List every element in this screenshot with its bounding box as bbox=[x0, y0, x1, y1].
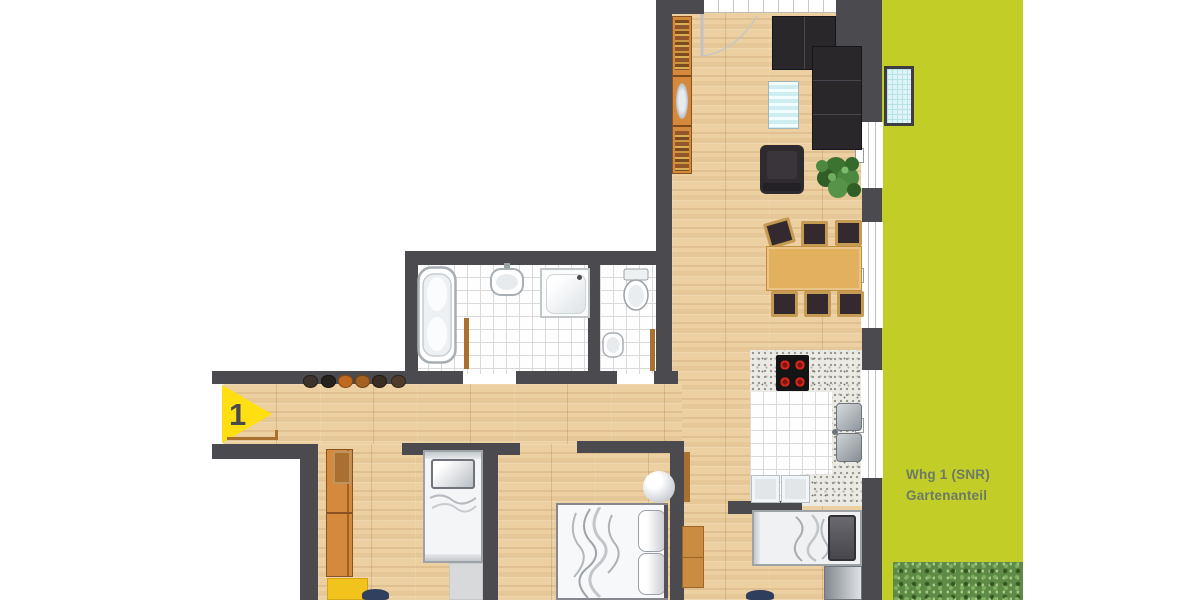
sink-basin bbox=[836, 433, 862, 462]
dining-chair bbox=[801, 221, 828, 247]
garden-label-line1: Whg 1 (SNR) bbox=[906, 464, 990, 485]
wall-segment bbox=[577, 441, 678, 453]
wall-segment bbox=[656, 0, 672, 384]
single-bed bbox=[423, 450, 483, 563]
shoes bbox=[372, 375, 387, 388]
shower-tray bbox=[546, 274, 586, 314]
books bbox=[675, 20, 689, 70]
entrance-number: 1 bbox=[229, 397, 246, 433]
kitchen-appliance bbox=[751, 475, 780, 503]
sink-faucet bbox=[832, 429, 838, 435]
bed-headboard bbox=[664, 505, 668, 598]
floor-corridor bbox=[223, 384, 682, 445]
dining-chair bbox=[771, 291, 798, 317]
window-kitchen bbox=[861, 370, 883, 478]
closet bbox=[824, 566, 862, 600]
wall-segment bbox=[516, 371, 617, 384]
dining-chair bbox=[835, 220, 862, 246]
sink-basin bbox=[836, 403, 862, 431]
shoes bbox=[338, 375, 353, 388]
entrance-door bbox=[227, 437, 278, 440]
dining-chair bbox=[837, 291, 864, 317]
single-bed-horizontal bbox=[752, 510, 862, 566]
bed-headboard bbox=[425, 452, 481, 459]
shelf-bowl bbox=[676, 83, 688, 119]
plant bbox=[808, 146, 864, 202]
bed-sheet-folds bbox=[426, 490, 480, 518]
shoes bbox=[391, 375, 406, 388]
bed-pillow bbox=[638, 510, 666, 552]
armchair-front bbox=[763, 183, 801, 191]
toilet bbox=[620, 268, 652, 312]
shoes bbox=[321, 375, 336, 388]
cooktop bbox=[776, 355, 809, 391]
coffee-table bbox=[768, 81, 799, 129]
wall-segment bbox=[300, 456, 318, 600]
garden-label-line2: Gartenanteil bbox=[906, 485, 990, 506]
floor-plan: Whg 1 (SNR) Gartenanteil 1 bbox=[0, 0, 1200, 600]
bed-pillow bbox=[828, 515, 856, 561]
wall-segment bbox=[405, 251, 672, 265]
shelf-divider bbox=[673, 125, 691, 127]
window-dining bbox=[861, 222, 883, 328]
office-chair bbox=[362, 589, 389, 600]
entry-door-swing bbox=[697, 12, 761, 60]
office-chair bbox=[746, 590, 774, 600]
double-bed bbox=[556, 503, 668, 600]
window-living bbox=[861, 122, 883, 188]
light-well bbox=[884, 66, 914, 126]
bed-footboard bbox=[754, 512, 760, 564]
entrance-door-handle bbox=[275, 430, 278, 438]
books bbox=[675, 131, 689, 171]
wall-segment bbox=[482, 443, 498, 600]
shelf-divider bbox=[673, 75, 691, 77]
wall-segment bbox=[405, 371, 463, 384]
washbasin bbox=[489, 263, 525, 297]
garden-label: Whg 1 (SNR) Gartenanteil bbox=[906, 464, 990, 506]
hedge bbox=[893, 562, 1023, 600]
shower-drain bbox=[577, 275, 582, 280]
wc-door bbox=[650, 329, 655, 371]
shower bbox=[540, 268, 590, 318]
bed-pillow bbox=[431, 459, 475, 489]
shoes bbox=[303, 375, 318, 388]
corner-sofa bbox=[812, 46, 862, 150]
bed-footboard bbox=[425, 554, 481, 561]
bedroom-door bbox=[684, 452, 690, 502]
dining-table bbox=[766, 246, 862, 291]
rug bbox=[449, 563, 483, 600]
armchair-seat bbox=[767, 151, 797, 179]
armchair bbox=[760, 145, 804, 194]
bed-pillow bbox=[638, 553, 666, 595]
floor-lamp-ball bbox=[643, 471, 675, 503]
bathtub bbox=[417, 266, 457, 364]
bed-duvet bbox=[788, 513, 832, 563]
nightstand bbox=[682, 526, 704, 588]
shoes bbox=[355, 375, 370, 388]
kitchen-sink bbox=[836, 403, 862, 462]
dining-chair bbox=[804, 291, 831, 317]
bookshelf bbox=[672, 16, 692, 174]
wall-segment bbox=[654, 371, 678, 384]
bed-duvet bbox=[560, 507, 636, 600]
kitchen-appliance bbox=[781, 475, 810, 503]
wc-basin bbox=[602, 329, 624, 359]
bathroom-door bbox=[464, 318, 469, 369]
room-door bbox=[333, 451, 351, 484]
